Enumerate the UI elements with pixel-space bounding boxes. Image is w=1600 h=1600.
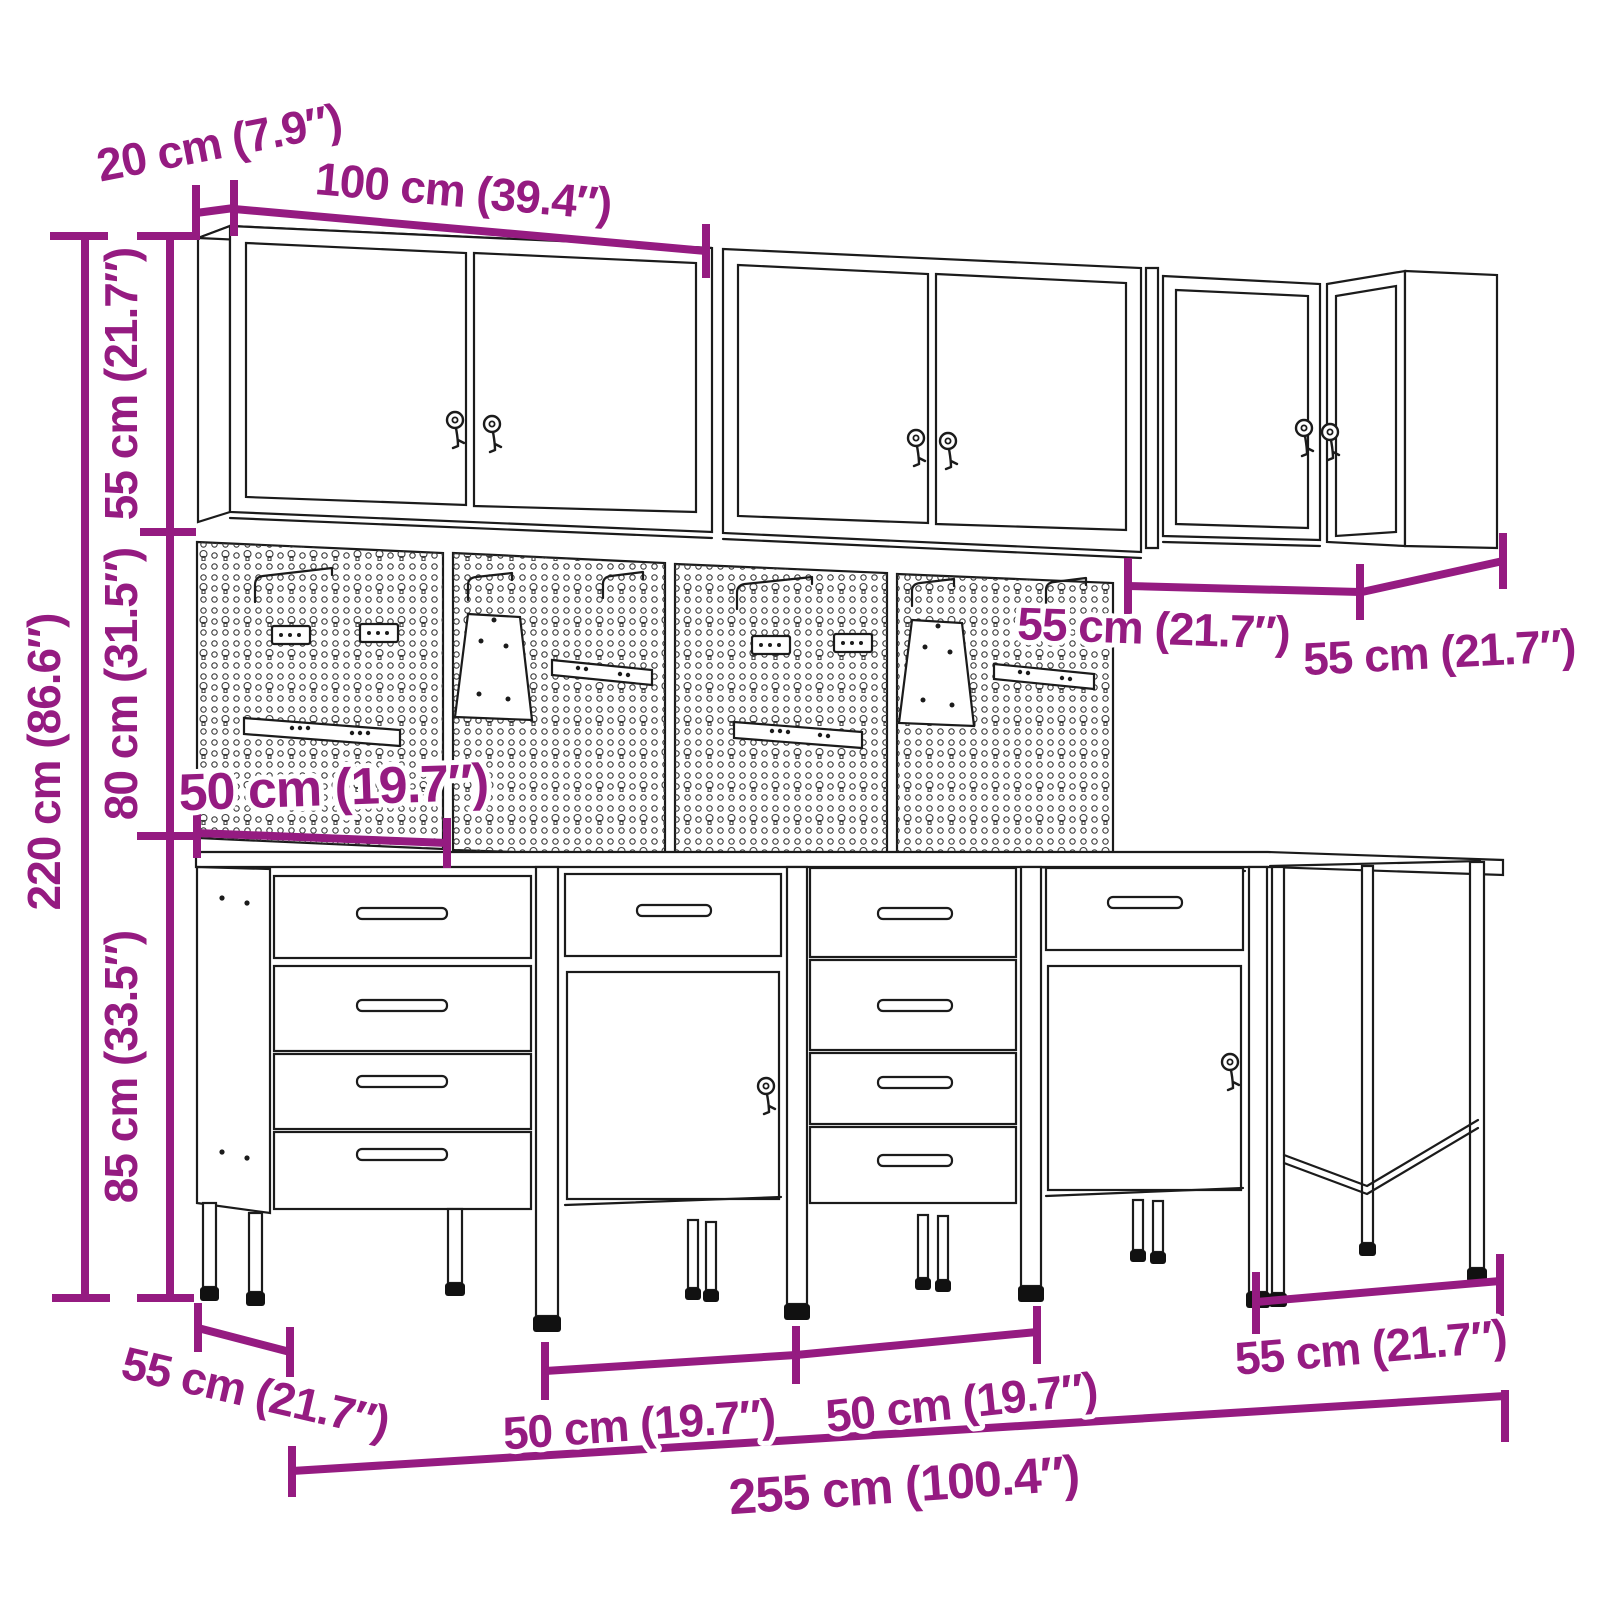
saw-holder-icon xyxy=(455,614,532,720)
wall-cabinet-2 xyxy=(723,249,1141,558)
drawer-handle xyxy=(878,1000,952,1011)
cabinet-door xyxy=(567,972,779,1199)
drawer-handle xyxy=(637,905,711,916)
saw-holder-icon xyxy=(899,620,974,726)
dim-label-total-height: 220 cm (86.6″) xyxy=(18,614,70,911)
drawer-handle xyxy=(357,1000,447,1011)
dim-label-base-height: 85 cm (33.5″) xyxy=(95,931,147,1203)
diagram-canvas: 20 cm (7.9″) 100 cm (39.4″) 55 cm (21.7″… xyxy=(0,0,1600,1600)
dim-label-pegboard-width: 50 cm (19.7″) xyxy=(178,754,489,823)
drawer-handle xyxy=(357,908,447,919)
drawer-handle xyxy=(357,1076,447,1087)
dimension-diagram: 20 cm (7.9″) 100 cm (39.4″) 55 cm (21.7″… xyxy=(0,0,1600,1600)
wall-cabinet-1 xyxy=(198,226,712,538)
drawer-handle xyxy=(1108,897,1182,908)
dim-label-wall-height: 55 cm (21.7″) xyxy=(95,248,147,520)
dim-label-pegboard-height: 80 cm (31.5″) xyxy=(95,548,147,820)
cabinet-door xyxy=(1048,966,1241,1190)
drawer-handle xyxy=(878,1077,952,1088)
drawer-handle xyxy=(878,908,952,919)
dim-line-wall-depth xyxy=(196,208,234,213)
drawer-handle xyxy=(878,1155,952,1166)
pegboard-panels xyxy=(197,542,1113,869)
drawer-handle xyxy=(357,1149,447,1160)
dim-label-corner-front: 55 cm (21.7″) xyxy=(1017,597,1291,658)
